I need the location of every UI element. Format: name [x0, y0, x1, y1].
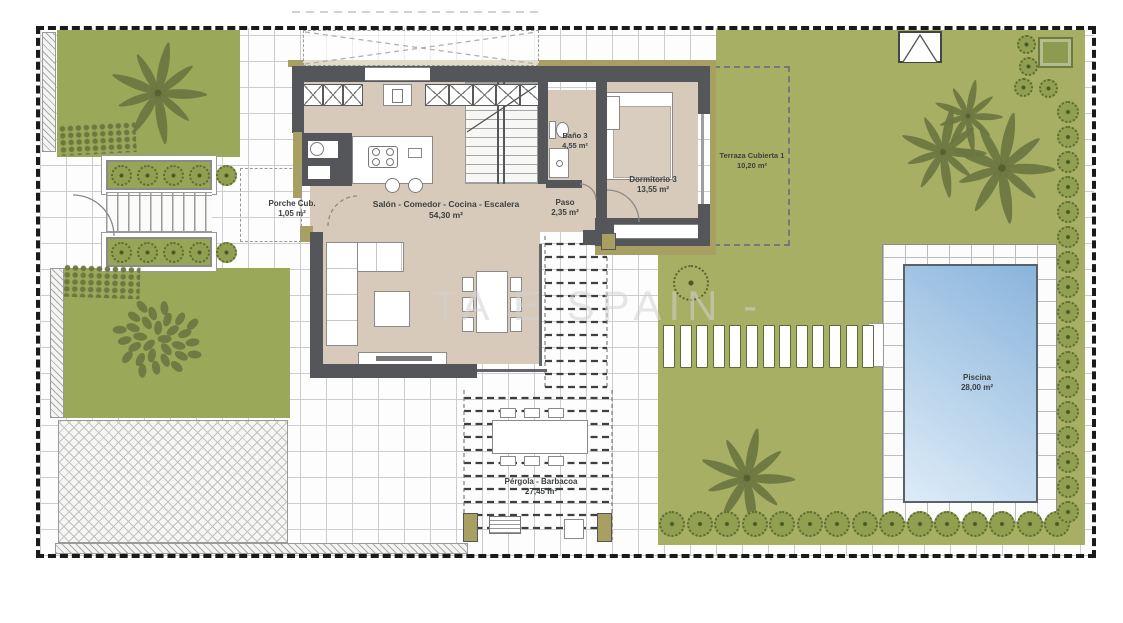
plot-boundary: [36, 26, 1096, 558]
floor-plan: Porche Cub. 1,05 m² Salón - Comedor - Co…: [0, 0, 1123, 623]
roof-extension: [290, 0, 545, 28]
